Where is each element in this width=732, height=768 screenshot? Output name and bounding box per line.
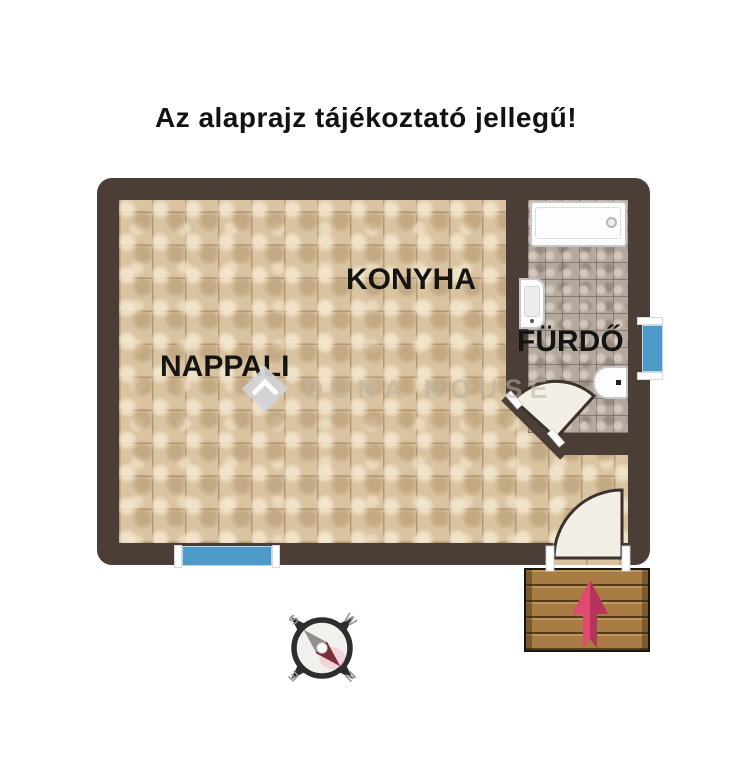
window-east — [642, 325, 663, 372]
bathtub — [530, 201, 627, 247]
compass-needle — [298, 624, 346, 672]
bathroom-bottom-wall — [556, 433, 650, 455]
room-label-furdo: FÜRDŐ — [517, 325, 624, 359]
floorplan-page: Az alaprajz tájékoztató jellegű! — [0, 0, 732, 768]
room-label-nappali: NAPPALI — [160, 350, 289, 384]
washbasin-bowl — [524, 286, 540, 317]
compass-tip-ne — [333, 612, 358, 637]
compass-letter-north: N — [342, 668, 359, 685]
window-east-jamb-top — [637, 317, 663, 325]
compass-blush — [319, 647, 345, 669]
compass-letter-east: E — [285, 668, 302, 685]
bathtub-drain — [606, 217, 617, 228]
compass: S W E N — [285, 610, 360, 685]
compass-tip-nw — [286, 612, 311, 637]
washbasin-drain — [530, 319, 534, 323]
compass-tip-se — [333, 659, 358, 684]
entrance-opening — [553, 543, 623, 565]
window-east-jamb-bottom — [637, 372, 663, 380]
toilet — [593, 366, 628, 399]
compass-tip-sw — [286, 659, 311, 684]
compass-ring — [294, 620, 350, 676]
compass-letter-west: W — [341, 610, 361, 630]
window-south-jamb-right — [272, 545, 280, 568]
washbasin — [519, 278, 545, 329]
entrance-steps — [524, 568, 650, 652]
compass-letter-south: S — [285, 611, 302, 628]
page-title: Az alaprajz tájékoztató jellegű! — [0, 96, 732, 140]
window-south-jamb-left — [174, 545, 182, 568]
window-south — [182, 546, 272, 566]
room-label-konyha: KONYHA — [346, 263, 476, 297]
toilet-cistern-button — [616, 380, 621, 385]
